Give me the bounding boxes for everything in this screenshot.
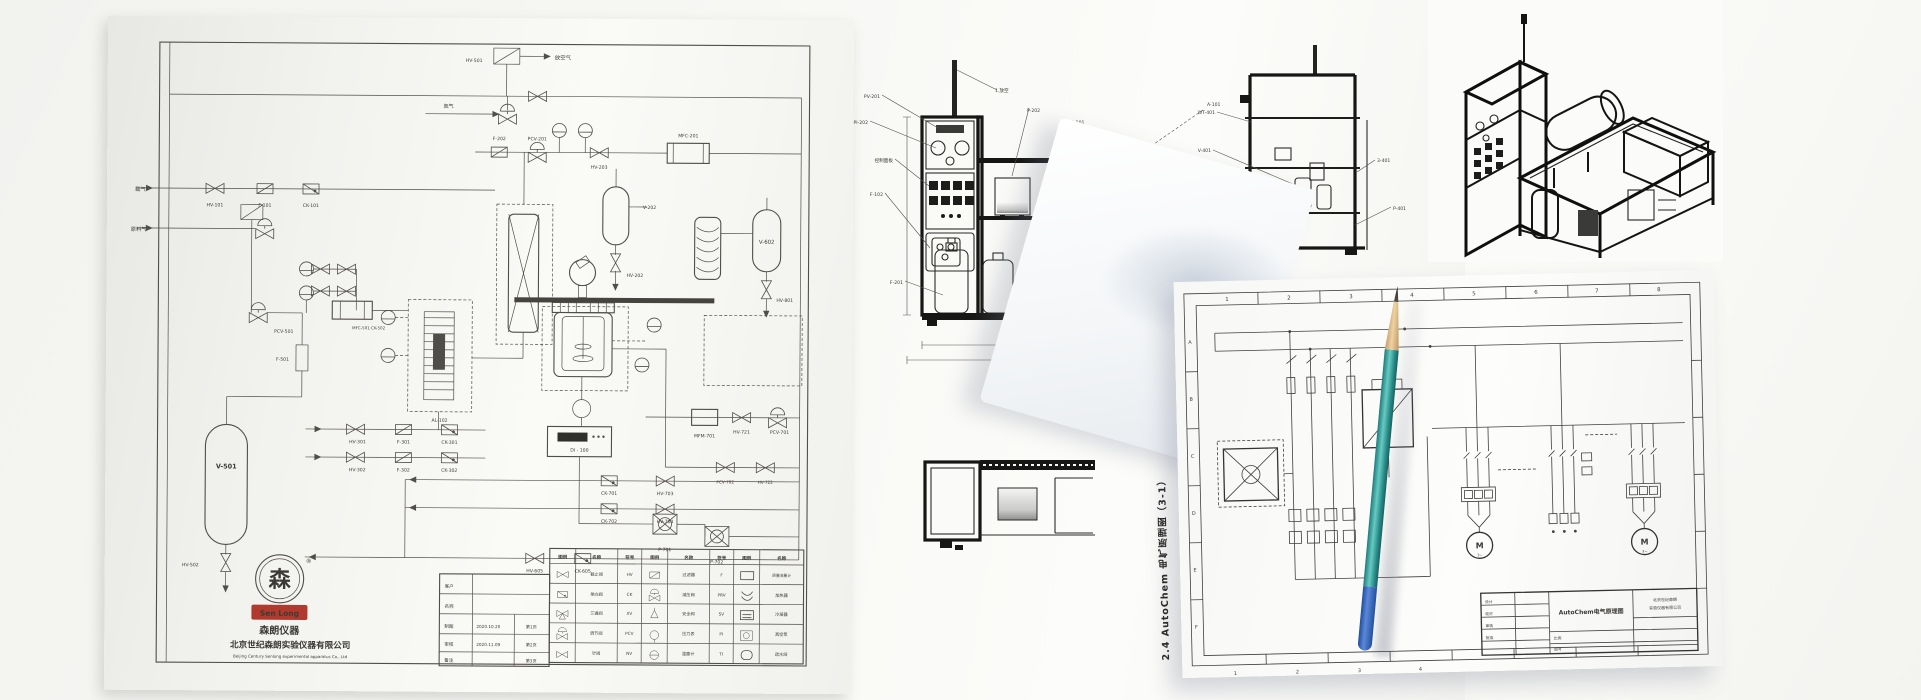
svg-text:1: 1 bbox=[1234, 671, 1237, 677]
svg-text:V-202: V-202 bbox=[643, 205, 656, 211]
svg-text:P-401: P-401 bbox=[1393, 206, 1406, 212]
svg-text:第1页: 第1页 bbox=[526, 623, 537, 630]
svg-text:温度计: 温度计 bbox=[682, 650, 695, 657]
svg-text:PI-202: PI-202 bbox=[853, 120, 868, 126]
svg-text:F-101: F-101 bbox=[258, 203, 271, 209]
svg-text:HV-301: HV-301 bbox=[349, 439, 366, 445]
power-circuit bbox=[1430, 341, 1688, 560]
svg-text:F: F bbox=[720, 572, 723, 577]
svg-text:F-102: F-102 bbox=[870, 192, 883, 198]
svg-text:AutoChem电气原理图: AutoChem电气原理图 bbox=[1559, 607, 1624, 616]
svg-text:真空泵: 真空泵 bbox=[775, 631, 788, 638]
svg-text:MFC-501·CK-502: MFC-501·CK-502 bbox=[352, 325, 385, 330]
svg-text:WT-401: WT-401 bbox=[1198, 110, 1215, 116]
pencil-graphite-tip bbox=[1389, 285, 1404, 302]
svg-text:第3页: 第3页 bbox=[526, 657, 537, 664]
pid-equipment-tags: HV-501放空气氮气F-202PCV-201HV-203MFC-201V-20… bbox=[129, 51, 795, 576]
svg-text:PCV-702: PCV-702 bbox=[716, 479, 734, 484]
electrical-labels: M3~M3~AutoChem电气原理图北京世纪森朗实验仪器有限公司设计校对审核批… bbox=[1476, 537, 1682, 654]
svg-text:第2页: 第2页 bbox=[526, 641, 537, 648]
svg-text:批准: 批准 bbox=[1486, 635, 1494, 640]
svg-text:2: 2 bbox=[1296, 669, 1299, 675]
svg-text:压力表: 压力表 bbox=[682, 630, 695, 637]
svg-text:HV-501: HV-501 bbox=[466, 58, 483, 64]
svg-text:名称: 名称 bbox=[777, 555, 787, 562]
pid-legend-texts: 图例名称符号图例名称符号图例名称截止阀单向阀三通阀调节阀针阀HVCKXVPCVN… bbox=[558, 553, 792, 657]
svg-text:3~: 3~ bbox=[1642, 549, 1647, 553]
motor-branch-2 bbox=[1625, 423, 1662, 555]
svg-text:图例: 图例 bbox=[742, 555, 752, 562]
svg-text:疏水阀: 疏水阀 bbox=[775, 651, 788, 658]
svg-text:名称: 名称 bbox=[684, 554, 694, 561]
svg-text:质量流量计: 质量流量计 bbox=[772, 573, 791, 578]
svg-text:控制面板: 控制面板 bbox=[875, 157, 894, 164]
svg-text:SV: SV bbox=[719, 611, 725, 616]
svg-text:M: M bbox=[1641, 537, 1649, 546]
svg-text:C: C bbox=[1191, 454, 1195, 460]
svg-text:原料气: 原料气 bbox=[131, 225, 147, 233]
svg-text:CK-301: CK-301 bbox=[441, 440, 457, 446]
svg-text:北京世纪森朗实验仪器有限公司: 北京世纪森朗实验仪器有限公司 bbox=[230, 638, 350, 651]
svg-text:8: 8 bbox=[1657, 287, 1661, 293]
svg-text:7: 7 bbox=[1595, 289, 1599, 295]
motor-branch-1 bbox=[1460, 427, 1497, 559]
svg-text:校对: 校对 bbox=[1485, 611, 1493, 616]
svg-text:P-701: P-701 bbox=[658, 547, 671, 553]
svg-text:F-201: F-201 bbox=[890, 280, 903, 286]
svg-text:2020.10.20: 2020.10.20 bbox=[476, 624, 500, 629]
svg-text:F-302: F-302 bbox=[397, 467, 410, 473]
svg-text:E: E bbox=[1193, 568, 1196, 574]
svg-text:D: D bbox=[1192, 511, 1196, 517]
svg-text:DI - 100: DI - 100 bbox=[570, 448, 588, 454]
svg-text:3-401: 3-401 bbox=[1377, 158, 1390, 164]
svg-text:3: 3 bbox=[1349, 294, 1353, 300]
svg-text:6: 6 bbox=[1534, 290, 1538, 296]
svg-text:F: F bbox=[1195, 625, 1198, 631]
svg-text:V-602: V-602 bbox=[759, 240, 775, 246]
svg-text:HV: HV bbox=[627, 572, 633, 577]
svg-text:设计: 设计 bbox=[1485, 599, 1493, 604]
svg-text:HV-703: HV-703 bbox=[657, 491, 674, 497]
svg-text:安全阀: 安全阀 bbox=[682, 610, 695, 617]
svg-text:F-501: F-501 bbox=[276, 357, 289, 363]
pid-drawing: HV-501放空气氮气F-202PCV-201HV-203MFC-201V-20… bbox=[104, 16, 854, 695]
svg-text:森朗仪器: 森朗仪器 bbox=[258, 624, 300, 637]
svg-text:4: 4 bbox=[1410, 293, 1414, 299]
svg-text:截止阀: 截止阀 bbox=[590, 571, 603, 578]
svg-text:TI: TI bbox=[718, 651, 723, 656]
svg-text:PCV-701: PCV-701 bbox=[770, 430, 789, 436]
svg-text:三通阀: 三通阀 bbox=[590, 610, 603, 617]
svg-text:名称: 名称 bbox=[592, 554, 602, 561]
pid-border bbox=[156, 42, 810, 666]
svg-text:备注: 备注 bbox=[444, 657, 454, 664]
svg-text:比例: 比例 bbox=[1554, 635, 1562, 640]
svg-text:F-301: F-301 bbox=[397, 440, 410, 446]
svg-text:客户: 客户 bbox=[445, 583, 454, 590]
svg-text:HV-101: HV-101 bbox=[207, 202, 224, 208]
svg-text:B: B bbox=[1189, 397, 1193, 403]
svg-text:审核: 审核 bbox=[1485, 623, 1493, 628]
svg-text:V-401: V-401 bbox=[1198, 148, 1211, 154]
svg-text:氮气: 氮气 bbox=[443, 103, 453, 110]
svg-text:HV-801: HV-801 bbox=[776, 298, 793, 304]
svg-text:符号: 符号 bbox=[717, 554, 727, 561]
svg-text:M: M bbox=[1476, 541, 1484, 550]
svg-text:3~: 3~ bbox=[1477, 553, 1482, 557]
svg-text:北京世纪森朗: 北京世纪森朗 bbox=[1653, 596, 1677, 603]
svg-text:2: 2 bbox=[1287, 296, 1291, 302]
svg-text:过滤器: 过滤器 bbox=[682, 571, 695, 578]
svg-text:1.放空: 1.放空 bbox=[995, 87, 1009, 94]
svg-text:制图: 制图 bbox=[444, 623, 454, 630]
svg-text:AL-102: AL-102 bbox=[432, 418, 448, 424]
svg-text:1: 1 bbox=[1225, 297, 1229, 303]
svg-text:PCV: PCV bbox=[625, 631, 633, 636]
svg-text:PCV-201: PCV-201 bbox=[528, 136, 547, 142]
svg-text:Beijing Century Senlong experi: Beijing Century Senlong experimental app… bbox=[233, 654, 348, 660]
photo-scene: HV-501放空气氮气F-202PCV-201HV-203MFC-201V-20… bbox=[0, 0, 1921, 700]
svg-text:减压阀: 减压阀 bbox=[682, 591, 695, 598]
svg-text:CK-605: CK-605 bbox=[575, 569, 591, 575]
svg-text:加热器: 加热器 bbox=[775, 592, 788, 599]
svg-text:NV: NV bbox=[626, 651, 632, 656]
svg-text:审核: 审核 bbox=[444, 641, 454, 648]
pid-block-texts: 森®Sen Long森朗仪器北京世纪森朗实验仪器有限公司Beijing Cent… bbox=[230, 557, 537, 664]
svg-text:冷凝器: 冷凝器 bbox=[775, 611, 788, 618]
svg-text:HV-202: HV-202 bbox=[626, 273, 643, 279]
svg-text:CK-101: CK-101 bbox=[303, 203, 319, 209]
svg-text:图号: 图号 bbox=[1554, 646, 1562, 651]
svg-text:HV-704: HV-704 bbox=[657, 519, 674, 525]
svg-text:A: A bbox=[1188, 340, 1192, 346]
svg-text:CK-302: CK-302 bbox=[441, 468, 457, 474]
sheet-iso bbox=[1428, 0, 1723, 262]
svg-text:V-501: V-501 bbox=[216, 462, 237, 470]
svg-text:CK: CK bbox=[627, 592, 633, 597]
svg-text:调节阀: 调节阀 bbox=[590, 630, 603, 637]
svg-text:实验仪器有限公司: 实验仪器有限公司 bbox=[1649, 604, 1681, 611]
svg-text:针阀: 针阀 bbox=[592, 650, 600, 657]
svg-text:MFC-201: MFC-201 bbox=[678, 133, 698, 139]
svg-text:XV: XV bbox=[627, 611, 633, 616]
sheet-electrical: 2.4 AutoChem 电气原理图（3-1） bbox=[1174, 270, 1723, 678]
svg-text:HV-721: HV-721 bbox=[733, 430, 750, 436]
svg-text:PCV-501: PCV-501 bbox=[274, 329, 293, 335]
svg-text:2020.11.09: 2020.11.09 bbox=[476, 642, 500, 647]
svg-text:图例: 图例 bbox=[558, 553, 568, 560]
svg-text:HV-605: HV-605 bbox=[526, 568, 543, 574]
svg-text:HV-203: HV-203 bbox=[591, 165, 608, 171]
svg-text:HV-722: HV-722 bbox=[758, 480, 774, 485]
iso-machine bbox=[1466, 14, 1713, 258]
iso-drawing bbox=[1428, 0, 1723, 262]
svg-text:HV-502: HV-502 bbox=[182, 562, 199, 568]
svg-text:森: 森 bbox=[269, 567, 292, 593]
svg-text:4: 4 bbox=[1419, 667, 1422, 673]
svg-text:MFM-701: MFM-701 bbox=[694, 433, 715, 439]
svg-text:单向阀: 单向阀 bbox=[590, 591, 603, 598]
svg-text:CK-701: CK-701 bbox=[601, 491, 617, 497]
svg-text:PV-201: PV-201 bbox=[864, 94, 880, 100]
svg-text:载气: 载气 bbox=[135, 185, 146, 193]
svg-text:F-202: F-202 bbox=[493, 136, 506, 142]
svg-text:Sen Long: Sen Long bbox=[260, 609, 299, 618]
aux-branch bbox=[1547, 425, 1593, 533]
svg-text:PRV: PRV bbox=[717, 592, 725, 597]
svg-text:®: ® bbox=[306, 558, 312, 565]
partial-plan-view bbox=[925, 460, 1095, 550]
svg-text:P-202: P-202 bbox=[1027, 108, 1040, 114]
svg-text:CK-702: CK-702 bbox=[601, 519, 617, 525]
svg-text:图例: 图例 bbox=[650, 554, 660, 561]
svg-text:A-101: A-101 bbox=[1207, 102, 1221, 108]
svg-text:放空气: 放空气 bbox=[555, 53, 572, 61]
svg-text:名称: 名称 bbox=[444, 603, 454, 610]
pid-legend-table bbox=[549, 548, 804, 664]
svg-text:PI: PI bbox=[719, 631, 723, 636]
electrical-drawing: 12345678ABCDEF1234 M3~M3~AutoChem电气原理图北京… bbox=[1174, 270, 1723, 678]
svg-text:HV-302: HV-302 bbox=[349, 467, 366, 473]
sheet-pid: HV-501放空气氮气F-202PCV-201HV-203MFC-201V-20… bbox=[104, 16, 854, 695]
svg-text:符号: 符号 bbox=[625, 554, 635, 561]
svg-text:3: 3 bbox=[1358, 668, 1361, 674]
svg-text:5: 5 bbox=[1472, 291, 1476, 297]
pid-title-block bbox=[439, 574, 550, 667]
